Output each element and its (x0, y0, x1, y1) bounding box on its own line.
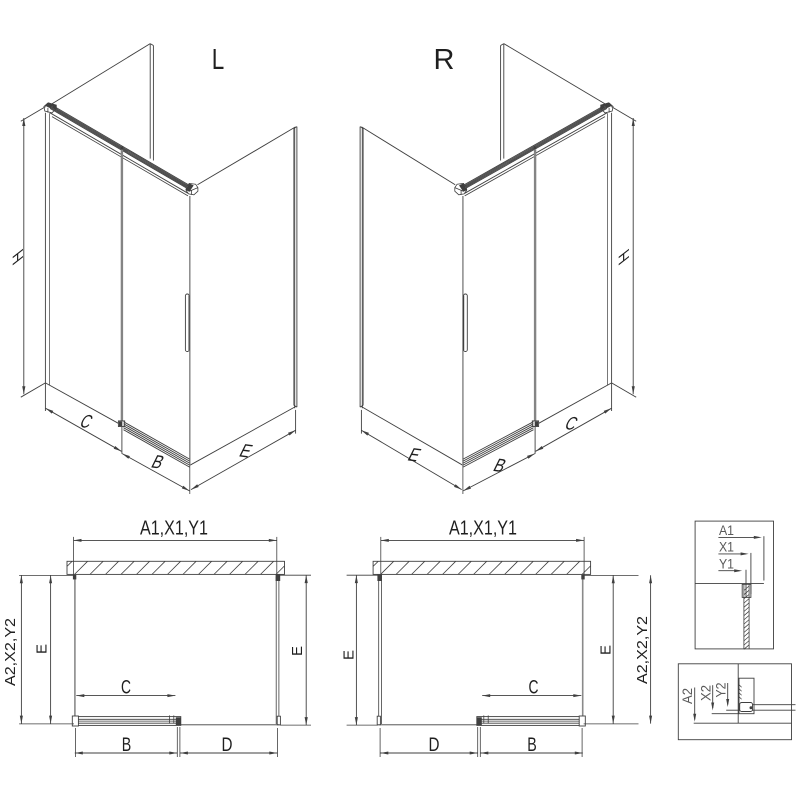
svg-text:A2,X2,Y2: A2,X2,Y2 (635, 616, 651, 684)
svg-text:Y2: Y2 (714, 683, 729, 698)
svg-text:A1,X1,Y1: A1,X1,Y1 (140, 518, 208, 540)
svg-text:C: C (529, 678, 539, 699)
svg-text:X1: X1 (719, 540, 734, 555)
svg-text:L: L (212, 44, 225, 76)
svg-text:E: E (290, 646, 306, 656)
svg-text:Y1: Y1 (719, 556, 734, 571)
svg-text:E: E (342, 650, 358, 660)
svg-text:A1: A1 (719, 523, 734, 538)
svg-text:D: D (429, 735, 440, 756)
svg-text:R: R (434, 44, 455, 76)
svg-text:B: B (527, 735, 537, 756)
svg-text:A2,X2,Y2: A2,X2,Y2 (3, 618, 19, 686)
svg-text:E: E (599, 645, 615, 655)
svg-text:E: E (35, 644, 51, 654)
svg-text:B: B (122, 735, 132, 756)
svg-text:D: D (222, 735, 233, 756)
svg-text:X2: X2 (699, 685, 714, 701)
svg-text:A1,X1,Y1: A1,X1,Y1 (449, 518, 517, 540)
svg-text:A2: A2 (680, 688, 695, 704)
svg-text:C: C (121, 678, 131, 699)
